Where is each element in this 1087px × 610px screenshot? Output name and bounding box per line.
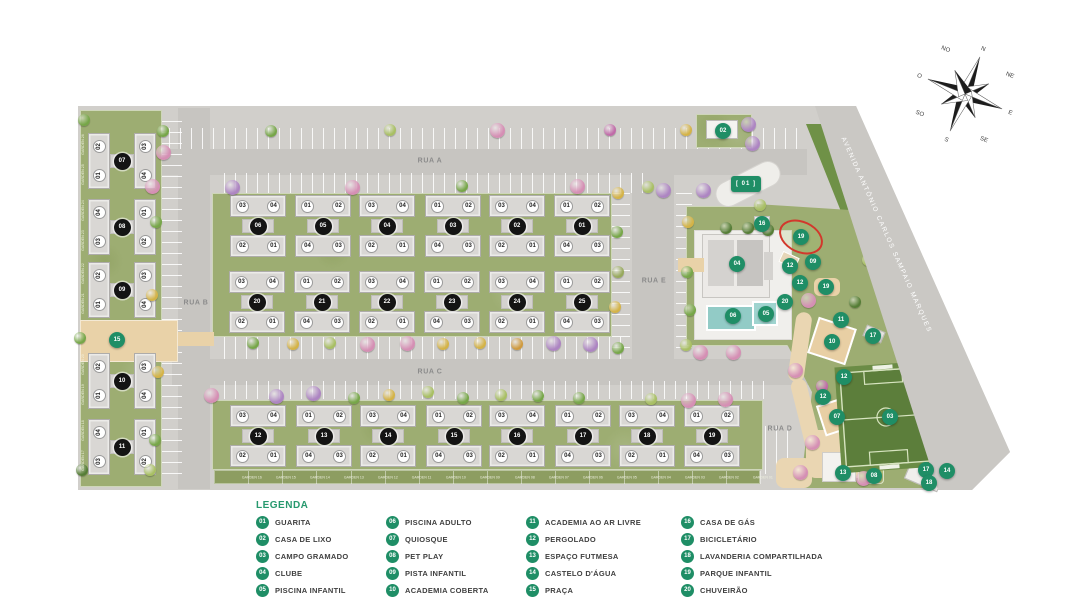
tree [152,366,164,378]
legend-item-label: PRAÇA [545,586,573,595]
tree [612,342,624,354]
unit-number: 03 [366,410,379,423]
tree [788,363,803,378]
building-top: 0304 [360,405,416,427]
unit-number: 01 [267,450,280,463]
street-label-rua-c: RUA C [418,369,443,376]
block-number: 06 [250,218,267,235]
unit-number: 03 [461,316,474,329]
garden-label: GARDEN 10 [420,471,454,484]
building-top: 0102 [554,195,610,217]
tree [422,386,434,398]
tree [742,222,754,234]
building-bottom: 0403 [426,445,482,467]
unit-number: 04 [396,276,409,289]
legend-item-number: 19 [681,567,694,580]
unit-number: 03 [365,276,378,289]
tree [570,179,585,194]
tree [511,338,523,350]
building-top: 0304 [489,271,545,293]
unit-number: 02 [333,410,346,423]
road-rua-e [632,172,674,362]
amenity-marker-07: 07 [829,409,845,425]
garden-label: GARDEN 26 [81,133,85,156]
tree [145,179,160,194]
tree [150,216,162,228]
block-number: 14 [380,428,397,445]
legend-item-number: 08 [386,550,399,563]
tree [74,332,86,344]
unit-number: 03 [495,410,508,423]
legend: LEGENDA 01GUARITA02CASA DE LIXO03CAMPO G… [0,494,1087,610]
unit-number: 01 [526,316,539,329]
garden-label: GARDEN 11 [386,471,420,484]
unit-number: 03 [235,276,248,289]
street-label-rua-e: RUA E [642,278,667,285]
compass-rose: NNEESESSOONO [905,37,1025,157]
unit-number: 04 [561,450,574,463]
block-number: 04 [379,218,396,235]
garden-label: GARDEN 08 [488,471,522,484]
amenity-marker-12: 12 [836,369,852,385]
amenity-marker-20: 20 [777,294,793,310]
tree [754,199,766,211]
amenity-marker-05: 05 [758,306,774,322]
unit-number: 02 [139,235,152,248]
legend-item-number: 01 [256,516,269,529]
residential-block-13: 0102040313 [296,405,352,467]
legend-item-label: CASTELO D'ÁGUA [545,569,616,578]
legend-item-label: ACADEMIA AO AR LIVRE [545,518,641,527]
residential-block-12: 0304020112 [230,405,286,467]
tree [546,336,561,351]
amenity-marker-13: 13 [835,465,851,481]
unit-number: 01 [397,450,410,463]
residential-block-19: 0102040319 [684,405,740,467]
block-number: 08 [114,219,131,236]
unit-number: 01 [267,240,280,253]
unit-number: 04 [656,410,669,423]
unit-number: 02 [592,410,605,423]
legend-item-label: CASA DE GÁS [700,518,755,527]
building-top: 0304 [229,271,285,293]
garden-label: GARDEN 19 [81,383,85,406]
residential-block-08: 0403010208 [88,199,156,255]
building-top: 0304 [359,195,415,217]
unit-number: 01 [93,169,106,182]
legend-item-label: CAMPO GRAMADO [275,552,348,561]
residential-block-18: 0304020118 [619,405,675,467]
amenity-marker-04: 04 [729,256,745,272]
tree [345,180,360,195]
block-number: 12 [250,428,267,445]
building-bottom: 0201 [230,445,286,467]
garden-label: GARDEN 02 [693,471,727,484]
garden-label: GARDEN 16 [215,471,249,484]
unit-number: 04 [267,200,280,213]
green-zone-row-3 [212,400,763,470]
tree [287,338,299,350]
unit-number: 02 [625,450,638,463]
legend-title: LEGENDA [256,500,308,511]
unit-number: 03 [139,140,152,153]
building-left: 0201 [88,353,110,409]
unit-number: 03 [721,450,734,463]
legend-item-number: 20 [681,584,694,597]
tree [157,125,169,137]
building-bottom: 0403 [295,235,351,257]
building-top: 0304 [359,271,415,293]
tree [801,293,816,308]
tree [642,181,654,193]
residential-block-07: 0201030407 [88,133,156,189]
tree [656,183,671,198]
amenity-marker-15: 15 [109,332,125,348]
unit-number: 04 [301,240,314,253]
block-number: 25 [574,294,591,311]
unit-number: 04 [690,450,703,463]
garden-label: GARDEN 12 [352,471,386,484]
tree [269,389,284,404]
residential-block-24: 0304020124 [489,271,545,333]
unit-number: 04 [560,240,573,253]
legend-item-label: GUARITA [275,518,311,527]
amenity-marker-19: 19 [818,279,834,295]
tree [144,464,156,476]
tree [156,145,171,160]
residential-block-25: 0102040325 [554,271,610,333]
legend-item-label: CLUBE [275,569,302,578]
unit-number: 01 [656,450,669,463]
building-bottom: 0403 [554,311,610,333]
garden-label: GARDEN 04 [625,471,659,484]
unit-number: 01 [690,410,703,423]
building-bottom: 0403 [554,235,610,257]
residential-block-06: 0304020106 [230,195,286,257]
amenity-marker-01: [ 01 ] [731,176,761,192]
unit-number: 02 [365,240,378,253]
unit-number: 04 [93,426,106,439]
unit-number: 04 [267,410,280,423]
tree [265,125,277,137]
tree [384,124,396,136]
road-rua-b [178,108,210,489]
block-number: 20 [249,294,266,311]
unit-number: 04 [93,206,106,219]
unit-number: 03 [331,316,344,329]
building-left: 0403 [88,419,110,475]
legend-item-number: 05 [256,584,269,597]
building-bottom: 0201 [229,311,285,333]
tree [573,392,585,404]
block-number: 09 [114,282,131,299]
block-number: 15 [446,428,463,445]
legend-item-number: 16 [681,516,694,529]
legend-item-number: 03 [256,550,269,563]
unit-number: 02 [591,276,604,289]
street-label-rua-a: RUA A [418,158,443,165]
unit-number: 03 [236,410,249,423]
legend-item-label: PET PLAY [405,552,443,561]
amenity-marker-10: 10 [824,334,840,350]
unit-number: 02 [93,269,106,282]
legend-item-number: 14 [526,567,539,580]
residential-block-01: 0102040301 [554,195,610,257]
building-right: 0304 [134,353,156,409]
unit-number: 04 [300,316,313,329]
unit-number: 02 [93,140,106,153]
block-number: 16 [509,428,526,445]
block-number: 17 [575,428,592,445]
tree [684,304,696,316]
residential-block-15: 0102040315 [426,405,482,467]
unit-number: 04 [430,316,443,329]
unit-number: 01 [561,410,574,423]
legend-item-label: CASA DE LIXO [275,535,332,544]
garden-label: GARDEN 17 [81,449,85,472]
garden-label: GARDEN 14 [283,471,317,484]
unit-number: 01 [301,200,314,213]
unit-number: 02 [462,200,475,213]
legend-item-label: PISTA INFANTIL [405,569,466,578]
legend-item-number: 12 [526,533,539,546]
legend-item: 20CHUVEIRÃO [681,582,871,599]
parking-stripe [162,114,182,484]
tree [495,389,507,401]
building-bottom: 0403 [684,445,740,467]
compass-label: E [1007,110,1013,117]
unit-number: 01 [526,240,539,253]
unit-number: 03 [462,240,475,253]
building-bottom: 0403 [296,445,352,467]
legend-item: 19PARQUE INFANTIL [681,565,871,582]
unit-number: 01 [139,206,152,219]
unit-number: 01 [266,316,279,329]
building-left: 0403 [88,199,110,255]
unit-number: 02 [495,450,508,463]
building-bottom: 0201 [619,445,675,467]
tree [741,117,756,132]
unit-number: 03 [139,360,152,373]
unit-number: 02 [365,316,378,329]
amenity-marker-12: 12 [782,258,798,274]
unit-number: 03 [139,269,152,282]
amenity-marker-12: 12 [792,275,808,291]
building-bottom: 0201 [489,311,545,333]
unit-number: 03 [625,410,638,423]
tree [400,336,415,351]
unit-number: 03 [236,200,249,213]
residential-block-21: 0102040321 [294,271,350,333]
building-top: 0102 [426,405,482,427]
legend-item-label: QUIOSQUE [405,535,448,544]
unit-number: 04 [526,410,539,423]
legend-item-label: CHUVEIRÃO [700,586,748,595]
unit-number: 02 [236,240,249,253]
building-bottom: 0201 [359,235,415,257]
tree [793,465,808,480]
unit-number: 03 [591,240,604,253]
compass-label: O [916,73,923,80]
building-bottom: 0403 [555,445,611,467]
block-number: 11 [114,439,131,456]
compass-label: S [943,137,949,144]
amenity-marker-14: 14 [939,463,955,479]
garden-label: GARDEN 01 [727,471,761,484]
unit-number: 03 [332,240,345,253]
unit-number: 03 [495,276,508,289]
garden-label: GARDEN 05 [590,471,624,484]
tree [225,180,240,195]
building-bottom: 0201 [489,445,545,467]
tree [306,386,321,401]
unit-number: 01 [526,450,539,463]
block-number: 13 [316,428,333,445]
legend-item-label: PISCINA ADULTO [405,518,472,527]
building-top: 0102 [295,195,351,217]
compass-label: NE [1005,71,1015,80]
garden-label: GARDEN 07 [522,471,556,484]
tree [146,289,158,301]
tree [682,216,694,228]
site-plan-page: GARDEN 16GARDEN 15GARDEN 14GARDEN 13GARD… [0,0,1087,610]
block-number: 05 [315,218,332,235]
garden-label: GARDEN 25 [81,163,85,186]
residential-block-16: 0304020116 [489,405,545,467]
unit-number: 01 [430,276,443,289]
legend-item: 16CASA DE GÁS [681,514,871,531]
tree [456,180,468,192]
unit-number: 04 [396,200,409,213]
amenity-marker-16: 16 [754,216,770,232]
unit-number: 02 [461,276,474,289]
legend-item-number: 15 [526,584,539,597]
tree [611,226,623,238]
building-top: 0102 [424,271,480,293]
street-label-rua-d: RUA D [768,426,793,433]
garden-label: GARDEN 06 [556,471,590,484]
unit-number: 03 [592,450,605,463]
building-bottom: 0201 [359,311,415,333]
garden-strip: GARDEN 16GARDEN 15GARDEN 14GARDEN 13GARD… [214,470,760,484]
residential-block-14: 0304020114 [360,405,416,467]
tree [720,222,732,234]
residential-block-09: 0201030409 [88,262,156,318]
amenity-marker-17: 17 [865,328,881,344]
building-bottom: 0403 [424,311,480,333]
praca-crosswalk [178,332,214,346]
legend-item-label: PISCINA INFANTIL [275,586,346,595]
tree [474,337,486,349]
tree [612,266,624,278]
residential-block-02: 0304020102 [489,195,545,257]
unit-number: 01 [432,410,445,423]
unit-number: 02 [721,410,734,423]
unit-number: 02 [366,450,379,463]
residential-block-20: 0304020120 [229,271,285,333]
block-number: 21 [314,294,331,311]
unit-number: 01 [431,200,444,213]
garden-label: GARDEN 03 [659,471,693,484]
unit-number: 01 [560,200,573,213]
legend-item-label: PARQUE INFANTIL [700,569,772,578]
residential-block-04: 0304020104 [359,195,415,257]
building-top: 0304 [489,195,545,217]
unit-number: 03 [93,455,106,468]
building-top: 0102 [684,405,740,427]
tree [681,266,693,278]
tree [693,345,708,360]
amenity-marker-03: 03 [882,409,898,425]
unit-number: 04 [266,276,279,289]
legend-item-number: 10 [386,584,399,597]
unit-number: 02 [235,316,248,329]
legend-item-number: 06 [386,516,399,529]
residential-block-22: 0304020122 [359,271,415,333]
residential-block-17: 0102040317 [555,405,611,467]
building-bottom: 0201 [489,235,545,257]
legend-item-number: 02 [256,533,269,546]
tree [437,338,449,350]
compass-label: N [980,46,986,53]
tree [604,124,616,136]
tree [681,393,696,408]
garden-label: GARDEN 13 [317,471,351,484]
tree [718,392,733,407]
legend-item-label: PERGOLADO [545,535,596,544]
tree [532,390,544,402]
amenity-marker-12: 12 [815,389,831,405]
unit-number: 04 [526,276,539,289]
unit-number: 04 [526,200,539,213]
legend-item-label: ACADEMIA COBERTA [405,586,489,595]
amenity-marker-09: 09 [805,254,821,270]
building-top: 0102 [294,271,350,293]
amenity-marker-06: 06 [725,308,741,324]
unit-number: 01 [560,276,573,289]
street-label-rua-b: RUA B [184,300,209,307]
building-top: 0304 [619,405,675,427]
tree [726,345,741,360]
tree [383,389,395,401]
amenity-marker-11: 11 [833,312,849,328]
legend-item-number: 18 [681,550,694,563]
unit-number: 03 [365,200,378,213]
building-bottom: 0403 [425,235,481,257]
compass-label: SO [914,110,925,119]
club-wing [764,252,773,280]
tree [745,136,760,151]
garden-label: GARDEN 23 [81,229,85,252]
compass-label: NO [940,45,951,54]
garden-label: GARDEN 20 [81,353,85,376]
block-number: 03 [445,218,462,235]
tree [645,393,657,405]
block-number: 01 [574,218,591,235]
unit-number: 04 [139,389,152,402]
tree [247,337,259,349]
tree [360,337,375,352]
tree [609,301,621,313]
building-bottom: 0201 [360,445,416,467]
building-bottom: 0201 [230,235,286,257]
building-top: 0102 [296,405,352,427]
block-number: 10 [114,373,131,390]
compass-label: SE [979,136,989,145]
block-number: 02 [509,218,526,235]
block-number: 07 [114,153,131,170]
legend-item-number: 17 [681,533,694,546]
